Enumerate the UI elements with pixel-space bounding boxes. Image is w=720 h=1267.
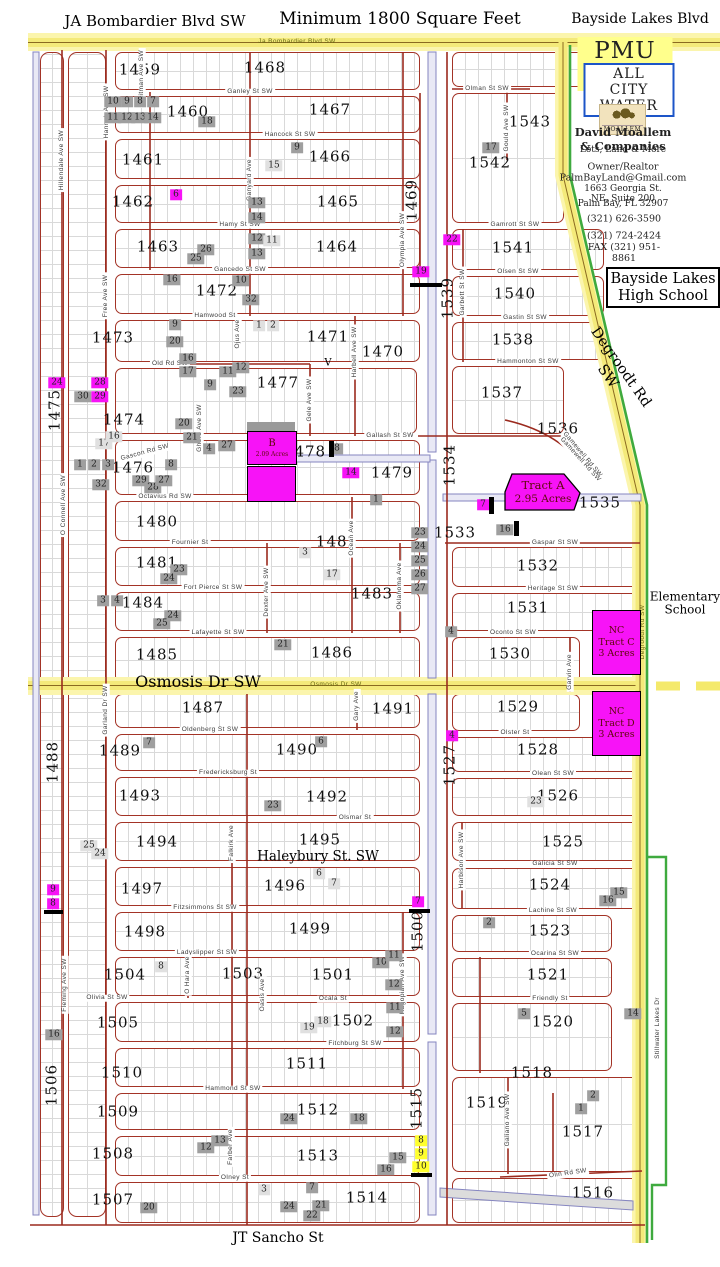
street-label-gastin-st-sw: Gastin St SW — [501, 315, 549, 322]
lot-14: 14 — [624, 1008, 641, 1019]
street-label-friendly-st: Friendly St — [530, 996, 569, 1003]
block-label-1514: 1514 — [346, 1191, 388, 1206]
street-label-heritage-st-sw: Heritage St SW — [526, 586, 580, 593]
marker-bar — [489, 497, 494, 514]
lot-29: 29 — [91, 391, 108, 402]
lot-1: 1 — [74, 459, 86, 470]
marker-bar — [411, 1173, 432, 1177]
street-label-lachine-st-sw: Lachine St SW — [527, 908, 579, 915]
block-label-1488: 1488 — [46, 741, 61, 783]
block-label-1512: 1512 — [297, 1103, 339, 1118]
lot-9: 9 — [291, 142, 303, 153]
block-label-1465: 1465 — [317, 195, 359, 210]
street-label-olean-st-sw: Olean St SW — [530, 771, 576, 778]
lot-20: 20 — [166, 336, 183, 347]
lot-13: 13 — [211, 1135, 228, 1146]
lot-18: 18 — [350, 1113, 367, 1124]
block-label-1469: 1469 — [405, 179, 420, 221]
street-label-oklahoma-ave: Oklahoma Ave — [397, 561, 404, 612]
lot-25: 25 — [411, 555, 428, 566]
street-label-harbell-ave-sw: Harbell Ave SW — [352, 325, 359, 380]
lot-17: 17 — [323, 569, 340, 580]
street-label-gould-ave-sw: Gould Ave SW — [504, 103, 511, 154]
lot-18: 18 — [198, 116, 215, 127]
block-label-1471: 1471 — [307, 330, 349, 345]
marker-bar — [410, 283, 442, 287]
tract-d: NCTract D3 Acres — [592, 691, 641, 756]
street-label-oldenberg-st-sw: Oldenberg St SW — [180, 727, 241, 734]
lot-6: 6 — [313, 868, 325, 879]
block-label-1494: 1494 — [136, 835, 178, 850]
lot-26: 26 — [411, 569, 428, 580]
lot-7: 7 — [412, 896, 424, 907]
tract-d-line-2: Tract D — [598, 718, 634, 730]
street-label-gallash-st-sw: Gallash St SW — [364, 433, 415, 440]
street-label-free-ave-sw: Free Ave SW — [103, 273, 110, 320]
lot-8: 8 — [155, 961, 167, 972]
block-label-1534: 1534 — [443, 444, 458, 486]
lot-11: 11 — [385, 950, 402, 961]
lot-19: 19 — [412, 266, 429, 277]
block-label-1479: 1479 — [371, 466, 413, 481]
lot-20: 20 — [140, 1202, 157, 1213]
block-label-1493: 1493 — [119, 789, 161, 804]
block-label-1520: 1520 — [532, 1015, 574, 1030]
block-label-1542: 1542 — [469, 156, 511, 171]
street-label-stillwater-lakes-dr: Stillwater Lakes Dr — [655, 995, 662, 1061]
road-label-ja-bombardier-blvd-sw: Ja Bombardier Blvd SW — [258, 39, 335, 46]
block-label-1523: 1523 — [529, 924, 571, 939]
map-label-osmosis-dr-sw: Osmosis Dr SW — [135, 673, 261, 691]
block-label-1467: 1467 — [309, 103, 351, 118]
lot-21: 21 — [274, 639, 291, 650]
lot-14: 14 — [248, 212, 265, 223]
street-label-fort-pierce-st-sw: Fort Pierce St SW — [182, 585, 245, 592]
street-label-ganley-st-sw: Ganley St SW — [225, 89, 275, 96]
lot-15: 15 — [389, 1152, 406, 1163]
lot-3: 3 — [102, 459, 114, 470]
street-label-gele-ave-sw: Gele Ave SW — [307, 377, 314, 424]
block-label-1533: 1533 — [434, 526, 476, 541]
lot-27: 27 — [155, 475, 172, 486]
high-school-label: Bayside Lakes High School — [606, 267, 720, 308]
marker-bar — [409, 909, 430, 913]
street-label-olin-rd-sw: Olin Rd SW — [547, 1168, 589, 1180]
block-label-1491: 1491 — [372, 702, 414, 717]
owner-realtor: Owner/Realtor — [588, 162, 659, 173]
block-label-1464: 1464 — [316, 240, 358, 255]
street-label-hancock-st-sw: Hancock St SW — [263, 132, 318, 139]
tract-b-lots — [247, 466, 296, 502]
lot-4: 4 — [446, 730, 458, 741]
lot-3: 3 — [299, 547, 311, 558]
fax: FAX (321) 951-8861 — [576, 242, 672, 264]
lot-10: 10 — [104, 96, 121, 107]
tract-d-line-1: NC — [609, 706, 625, 718]
lot-27: 27 — [218, 440, 235, 451]
lot-23: 23 — [527, 796, 544, 807]
marker-bar — [44, 910, 63, 914]
lot-11: 11 — [263, 235, 280, 246]
lot-4: 4 — [111, 595, 123, 606]
tract-c-line-1: NC — [609, 625, 625, 637]
phone-1: (321) 626-3590 — [587, 214, 661, 225]
lot-17: 17 — [482, 142, 499, 153]
street-label-hammonton-st-sw: Hammonton St SW — [495, 359, 561, 366]
lot-11: 11 — [386, 1002, 403, 1013]
block-label-1513: 1513 — [297, 1149, 339, 1164]
block-label-1540: 1540 — [494, 287, 536, 302]
block-label-1483: 1483 — [351, 587, 393, 602]
block-label-1500: 1500 — [411, 910, 426, 952]
tract-a: Tract A2.95 Acres — [505, 474, 581, 510]
lot-1: 1 — [253, 320, 265, 331]
street-label-olivia-st-sw: Olivia St SW — [84, 995, 129, 1002]
lot-27: 27 — [411, 583, 428, 594]
street-label-ocarina-st-sw: Ocarina St SW — [529, 951, 581, 958]
block-label-1461: 1461 — [122, 153, 164, 168]
lot-30: 30 — [74, 391, 91, 402]
lot-7: 7 — [477, 499, 489, 510]
block-label-1539: 1539 — [441, 277, 456, 319]
street-label-fredericksburg-st: Fredericksburg St — [197, 770, 259, 777]
block-label-1463: 1463 — [137, 240, 179, 255]
block-label-1476: 1476 — [112, 461, 154, 476]
street-label-fitzsimmons-st-sw: Fitzsimmons St SW — [171, 905, 239, 912]
street-label-dexter-ave-sw: Dexter Ave SW — [264, 565, 271, 618]
lot-8: 8 — [134, 96, 146, 107]
lot-14: 14 — [342, 467, 359, 478]
lot-2: 2 — [88, 459, 100, 470]
lot-16: 16 — [179, 353, 196, 364]
block-label-1524: 1524 — [529, 878, 571, 893]
block-label-1521: 1521 — [527, 968, 569, 983]
street-label-ganyard-ave: Ganyard Ave — [247, 157, 254, 203]
block-label-1468: 1468 — [244, 61, 286, 76]
street-label-gaspar-st-sw: Gaspar St SW — [530, 540, 580, 547]
block-label-1504: 1504 — [104, 968, 146, 983]
address-line2: Palm Bay, FL 32907 — [578, 199, 669, 209]
lot-25: 25 — [153, 618, 170, 629]
street-label-garvin-ave: Garvin Ave — [567, 652, 574, 692]
block-label-1531: 1531 — [507, 601, 549, 616]
block-label-1506: 1506 — [45, 1064, 60, 1106]
street-label-lafayette-st-sw: Lafayette St SW — [190, 630, 247, 637]
street-label-oasis-ave: Oasis Ave — [260, 977, 267, 1014]
block-label-1485: 1485 — [136, 648, 178, 663]
lot-7: 7 — [328, 878, 340, 889]
block-label-1515: 1515 — [410, 1087, 425, 1129]
lot-12: 12 — [385, 979, 402, 990]
plat-map: 1459146814671460146114661462146514631464… — [0, 0, 720, 1267]
street-label-ocala-st: Ocala St — [317, 996, 349, 1003]
lot-23: 23 — [411, 527, 428, 538]
lot-3: 3 — [258, 1184, 270, 1195]
block-label-1543: 1543 — [509, 115, 551, 130]
block-label-1480: 1480 — [136, 515, 178, 530]
block-label-1492: 1492 — [306, 790, 348, 805]
lot-9: 9 — [169, 319, 181, 330]
lot-16: 16 — [45, 1029, 62, 1040]
street-label-fleming-ave-sw: Fleming Ave SW — [62, 956, 69, 1014]
block-label-1496: 1496 — [264, 879, 306, 894]
block-label-1505: 1505 — [97, 1016, 139, 1031]
block-label-1502: 1502 — [332, 1014, 374, 1029]
marker-bar — [329, 441, 334, 457]
lot-22: 22 — [303, 1210, 320, 1221]
lot-12: 12 — [386, 1026, 403, 1037]
block-label-1516: 1516 — [572, 1186, 614, 1201]
lot-1: 1 — [370, 494, 382, 505]
tract-a-line-1: Tract A — [521, 478, 564, 492]
street-label-falkirk-ave: Falkirk Ave — [229, 823, 236, 863]
lot-25: 25 — [187, 253, 204, 264]
block-label-1474: 1474 — [103, 413, 145, 428]
lot-28: 28 — [91, 377, 108, 388]
block-label-1518: 1518 — [511, 1066, 553, 1081]
block-label-1470: 1470 — [362, 345, 404, 360]
block-label-1535: 1535 — [579, 496, 621, 511]
street-label-fournier-st: Fournier St — [170, 540, 211, 547]
street-label-ocean-ave: Ocean Ave — [349, 518, 356, 557]
lot-1: 1 — [575, 1103, 587, 1114]
lot-9: 9 — [415, 1148, 427, 1159]
block-label-1497: 1497 — [121, 882, 163, 897]
map-label-jt-sancho-st: JT Sancho St — [232, 1231, 323, 1247]
lot-4: 4 — [203, 443, 215, 454]
lot-8: 8 — [415, 1135, 427, 1146]
block-label-1487: 1487 — [182, 701, 224, 716]
lot-23: 23 — [264, 800, 281, 811]
tract-c-line-2: Tract C — [599, 637, 635, 649]
lot-9: 9 — [121, 96, 133, 107]
street-label-olman-st-sw: Olman St SW — [463, 86, 511, 93]
map-label-haleybury-st-sw: Haleybury St. SW — [257, 849, 379, 864]
map-label-v: V — [324, 357, 331, 368]
block-label-1519: 1519 — [466, 1096, 508, 1111]
lot-2: 2 — [483, 917, 495, 928]
street-label-fitchburg-st-sw: Fitchburg St SW — [326, 1041, 383, 1048]
lot-14: 14 — [144, 112, 161, 123]
block-label-1484: 1484 — [122, 596, 164, 611]
street-label-o-hara-ave: O Hara Ave — [185, 954, 192, 995]
lot-10: 10 — [412, 1161, 429, 1172]
street-label-olympia-ave-sw: Olympia Ave SW — [400, 211, 407, 269]
marker-bar — [514, 521, 519, 536]
block-label-1541: 1541 — [492, 241, 534, 256]
lot-2: 2 — [267, 320, 279, 331]
lot-20: 20 — [175, 418, 192, 429]
block-label-1495: 1495 — [299, 833, 341, 848]
street-label-garbett-st-sw: Garbett St SW — [460, 266, 467, 317]
block-label-1499: 1499 — [289, 922, 331, 937]
lot-32: 32 — [92, 479, 109, 490]
header-minimum-sqft: Minimum 1800 Square Feet — [279, 9, 521, 29]
block-label-1538: 1538 — [492, 333, 534, 348]
block-label-1501: 1501 — [312, 968, 354, 983]
block-label-1498: 1498 — [124, 925, 166, 940]
block-label-1537: 1537 — [481, 386, 523, 401]
tract-b: B2.09 Acres — [247, 431, 297, 465]
tract-b-line-2: 2.09 Acres — [256, 451, 288, 459]
street-label-oconto-st-sw: Oconto St SW — [488, 630, 538, 637]
lot-9: 9 — [204, 379, 216, 390]
block-label-1532: 1532 — [517, 559, 559, 574]
block-label-1529: 1529 — [497, 700, 539, 715]
block-label-1489: 1489 — [99, 744, 141, 759]
lot-17: 17 — [179, 366, 196, 377]
lot-24: 24 — [160, 573, 177, 584]
block-label-1490: 1490 — [276, 743, 318, 758]
lot-9: 9 — [47, 884, 59, 895]
lot-7: 7 — [306, 1182, 318, 1193]
street-label-hamwood-st: Hamwood St — [192, 313, 237, 320]
lot-23: 23 — [229, 386, 246, 397]
block-label-1477: 1477 — [257, 376, 299, 391]
street-label-olney-st: Olney St — [219, 1175, 251, 1182]
street-label-olster-st: Olster St — [499, 730, 532, 737]
header-bayside-lakes: Bayside Lakes Blvd — [571, 11, 709, 27]
block-label-1510: 1510 — [101, 1066, 143, 1081]
lot-15: 15 — [265, 160, 282, 171]
lot-8: 8 — [47, 898, 59, 909]
lot-10: 10 — [232, 275, 249, 286]
lot-16: 16 — [496, 524, 513, 535]
lot-16: 16 — [105, 431, 122, 442]
lot-24: 24 — [91, 848, 108, 859]
street-label-octavius-rd-sw: Octavius Rd SW — [136, 494, 193, 501]
lot-2: 2 — [587, 1090, 599, 1101]
street-label-hammond-st-sw: Hammond St SW — [203, 1086, 262, 1093]
lot-13: 13 — [248, 248, 265, 259]
tract-b-line-1: B — [268, 438, 275, 451]
block-label-1528: 1528 — [517, 743, 559, 758]
tract-a-line-2: 2.95 Acres — [515, 493, 572, 506]
lot-4: 4 — [445, 626, 457, 637]
company-tagline: Lots, Land & More — [580, 145, 666, 155]
block-label-1517: 1517 — [562, 1125, 604, 1140]
lion-icon — [608, 107, 637, 121]
lot-21: 21 — [183, 432, 200, 443]
street-label-galicia-st-sw: Galicia St SW — [530, 861, 579, 868]
street-label-farber-ave: Farber Ave — [228, 1127, 235, 1167]
block-label-1509: 1509 — [97, 1105, 139, 1120]
lot-3: 3 — [97, 595, 109, 606]
map-label-elementary-school: Elementary School — [650, 591, 720, 618]
street-label-gancedo-st-sw: Gancedo St SW — [212, 267, 268, 274]
block-label-1527: 1527 — [443, 744, 458, 786]
lot-16: 16 — [377, 1164, 394, 1175]
block-label-1486: 1486 — [311, 646, 353, 661]
lot-5: 5 — [518, 1008, 530, 1019]
street-label-galiano-ave-sw: Galiano Ave SW — [505, 1092, 512, 1149]
lot-24: 24 — [280, 1113, 297, 1124]
street-label-ojus-ave: Ojus Ave — [235, 317, 242, 350]
marker-bar — [247, 422, 295, 431]
street-label-o-connell-ave-sw: O Connell Ave SW — [61, 473, 68, 537]
lot-32: 32 — [242, 294, 259, 305]
lot-12: 12 — [232, 362, 249, 373]
street-label-olsmar-st: Olsmar St — [337, 815, 374, 822]
block-label-1530: 1530 — [489, 647, 531, 662]
email: PalmBayLand@Gmail.com — [560, 173, 687, 184]
lot-6: 6 — [170, 189, 182, 200]
block-label-1462: 1462 — [112, 195, 154, 210]
lot-24: 24 — [280, 1201, 297, 1212]
lot-24: 24 — [411, 541, 428, 552]
tract-c-line-3: 3 Acres — [598, 648, 634, 660]
lot-7: 7 — [147, 96, 159, 107]
lot-13: 13 — [248, 197, 265, 208]
lot-7: 7 — [143, 737, 155, 748]
block-label-1536: 1536 — [537, 422, 579, 437]
header-ja-bombardier: JA Bombardier Blvd SW — [64, 12, 245, 30]
block-label-1511: 1511 — [286, 1057, 328, 1072]
block-label-1475: 1475 — [48, 389, 63, 431]
tract-c: NCTract C3 Acres — [592, 610, 641, 675]
block-label-1525: 1525 — [542, 835, 584, 850]
lot-16: 16 — [163, 274, 180, 285]
block-label-1507: 1507 — [92, 1193, 134, 1208]
tract-d-line-3: 3 Acres — [598, 729, 634, 741]
street-label-harbison-ave-sw: Harbison Ave SW — [459, 830, 466, 891]
street-label-gary-ave: Gary Ave — [354, 689, 361, 723]
block-label-1508: 1508 — [92, 1147, 134, 1162]
lot-8: 8 — [165, 459, 177, 470]
block-label-1473: 1473 — [92, 331, 134, 346]
block-label-1466: 1466 — [309, 150, 351, 165]
street-label-olsen-st-sw: Olsen St SW — [495, 269, 541, 276]
street-label-garland-dr-sw: Garland Dr SW — [103, 683, 110, 736]
lot-16: 16 — [599, 895, 616, 906]
map-label-degroodt-rd-sw: Degroodt Rd SW — [570, 319, 657, 424]
road-label-osmosis-dr-sw: Osmosis Dr SW — [310, 682, 361, 689]
lot-6: 6 — [315, 736, 327, 747]
lot-18: 18 — [314, 1016, 331, 1027]
lot-22: 22 — [443, 234, 460, 245]
lot-24: 24 — [48, 377, 65, 388]
street-label-hillendale-ave-sw: Hillendale Ave SW — [59, 128, 66, 192]
phone-2: (321) 724-2424 — [587, 231, 661, 242]
street-label-gamrott-st-sw: Gamrott St SW — [489, 222, 542, 229]
